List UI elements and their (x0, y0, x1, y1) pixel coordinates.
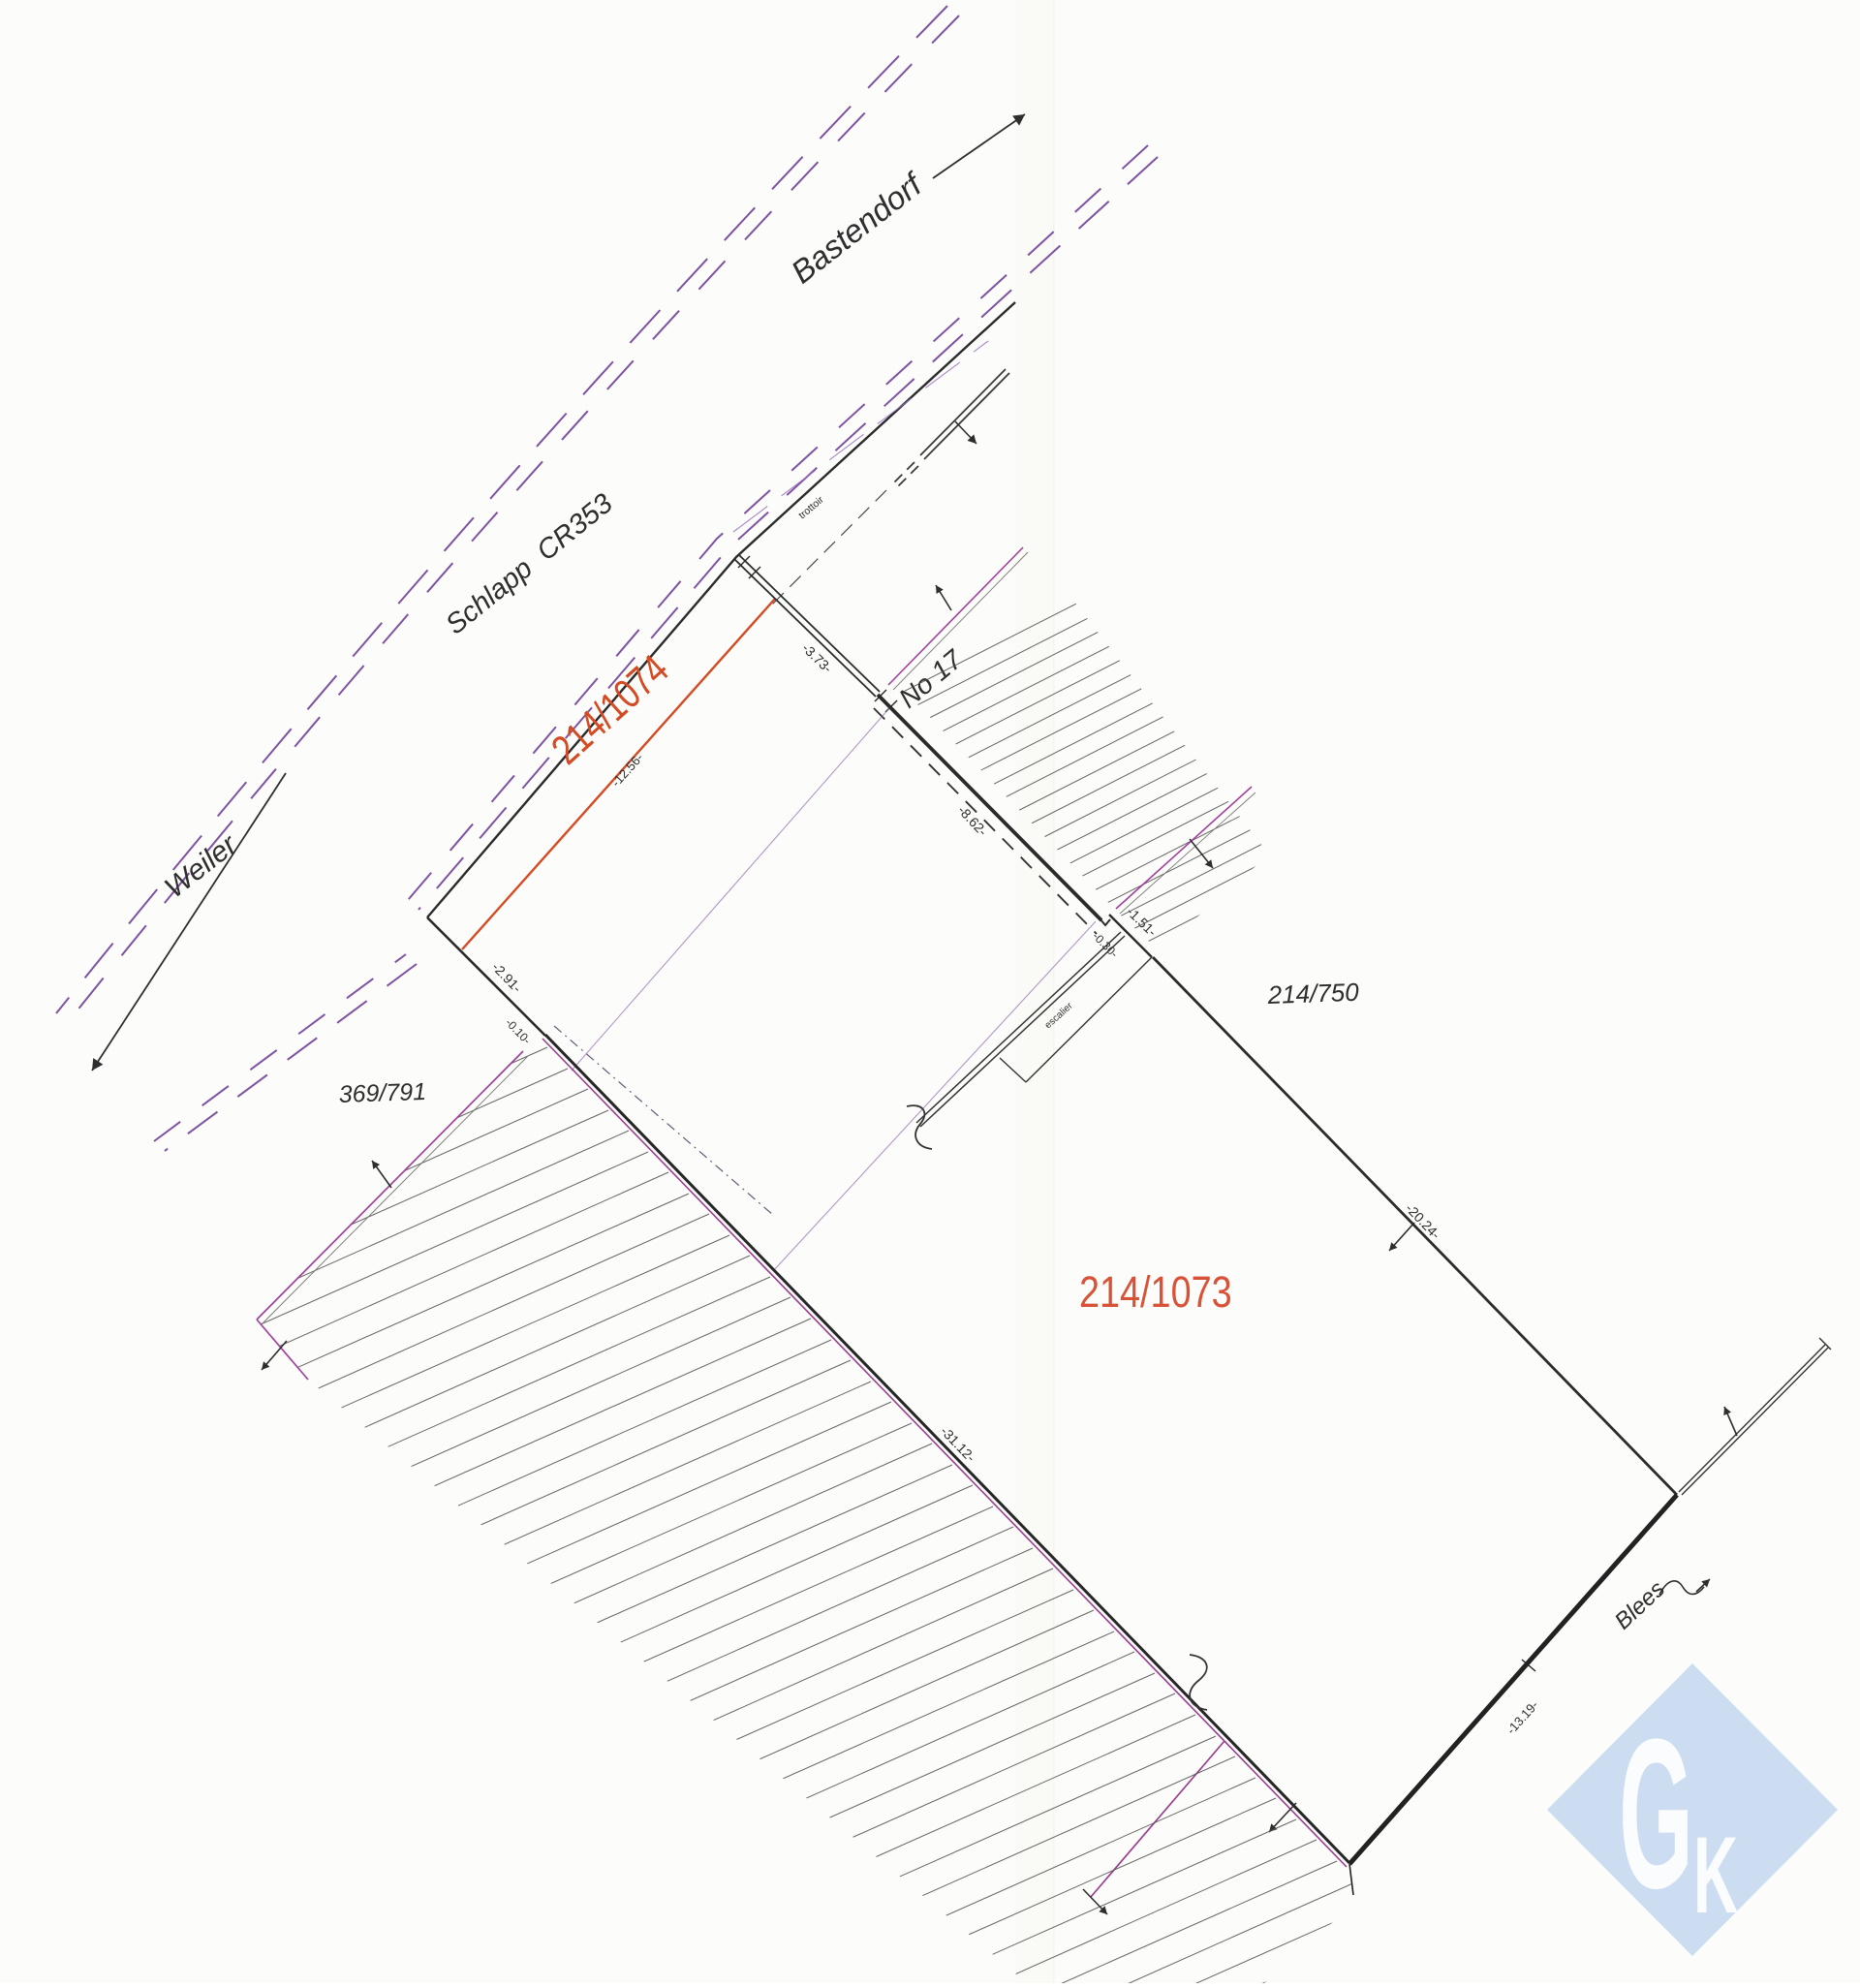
svg-text:K: K (1693, 1815, 1738, 1936)
svg-text:214/750: 214/750 (1266, 978, 1360, 1010)
svg-text:369/791: 369/791 (338, 1078, 426, 1108)
svg-text:G: G (1619, 1696, 1693, 1934)
svg-text:214/1073: 214/1073 (1079, 1267, 1232, 1317)
